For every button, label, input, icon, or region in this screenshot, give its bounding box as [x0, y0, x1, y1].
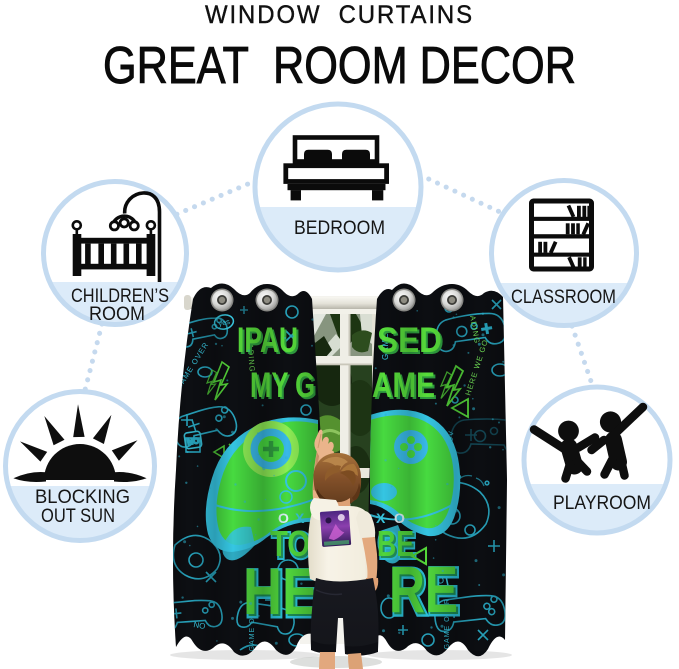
- svg-text:CLASSROOM: CLASSROOM: [511, 287, 616, 308]
- svg-text:WINDOW CURTAINS: WINDOW CURTAINS: [205, 1, 474, 29]
- svg-text:PLAYROOM: PLAYROOM: [553, 493, 651, 514]
- svg-text:ROOM: ROOM: [89, 304, 145, 325]
- svg-text:OUT SUN: OUT SUN: [41, 506, 115, 527]
- svg-text:GREAT ROOM DECOR: GREAT ROOM DECOR: [103, 37, 576, 95]
- svg-text:BLOCKING: BLOCKING: [35, 487, 130, 508]
- svg-text:BEDROOM: BEDROOM: [294, 217, 385, 239]
